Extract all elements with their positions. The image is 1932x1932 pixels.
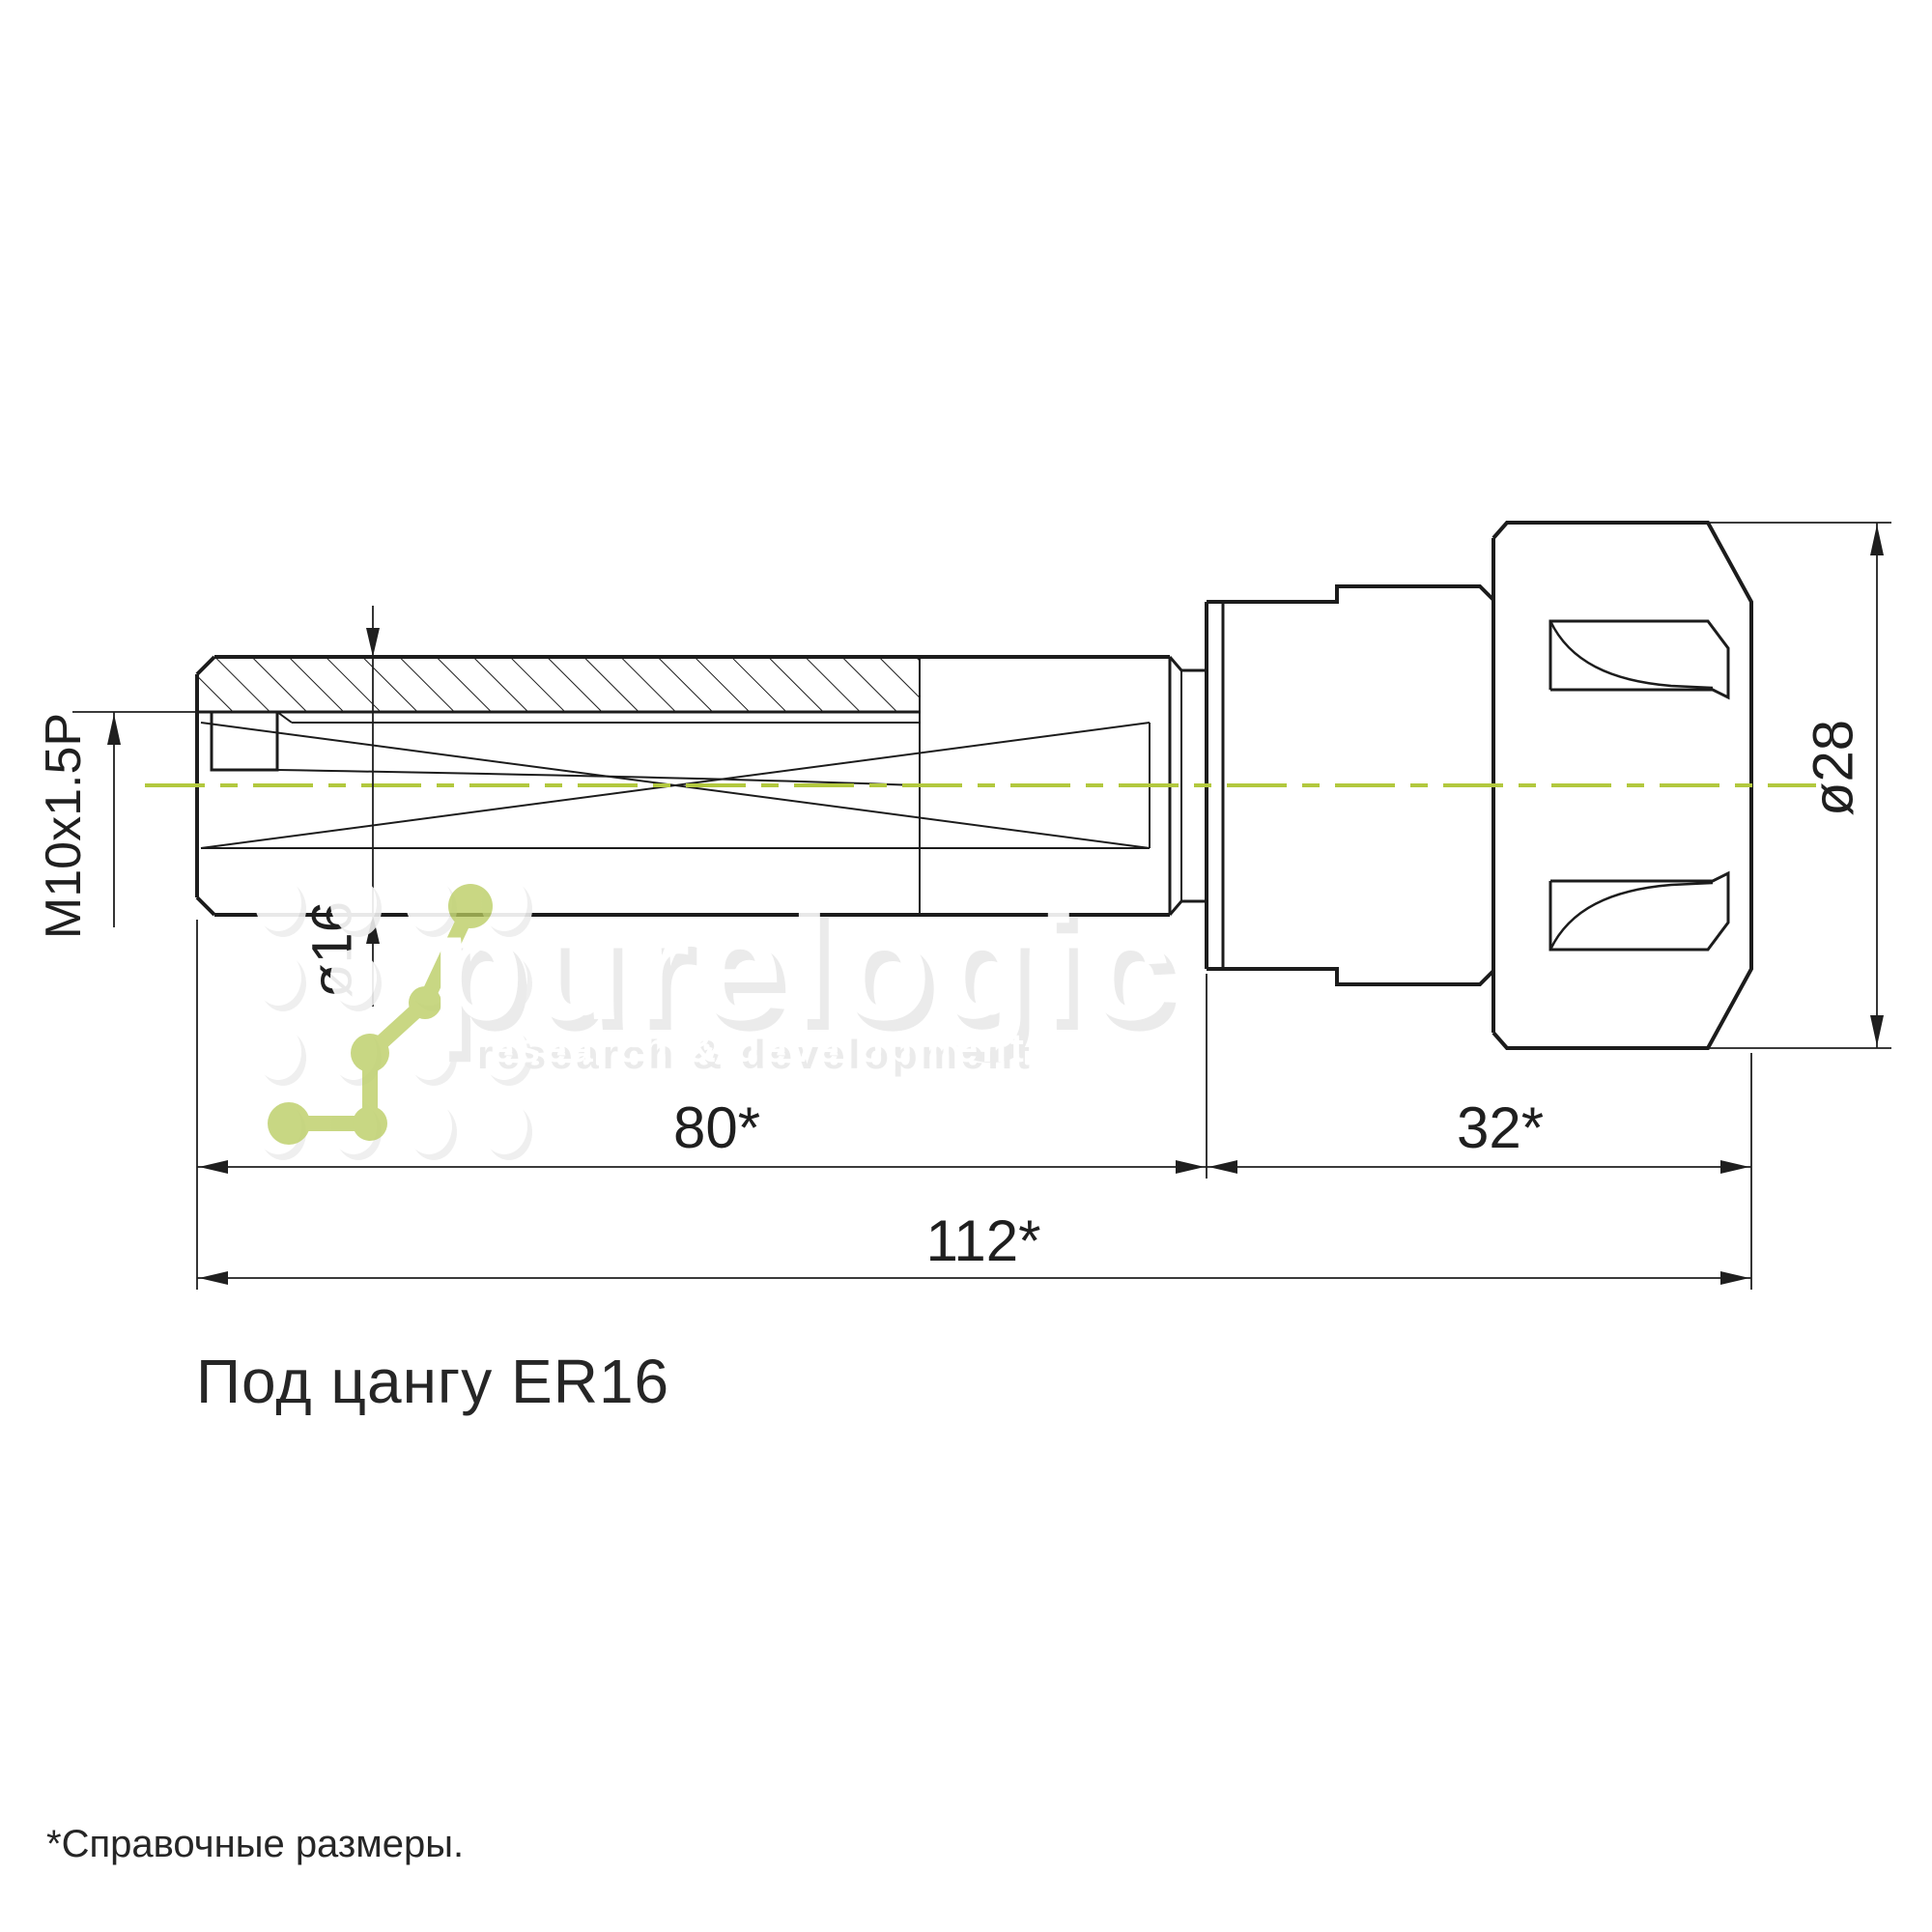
nut-length-label: 32* — [1457, 1095, 1544, 1160]
reference-dimensions-footnote: *Справочные размеры. — [46, 1823, 464, 1865]
shank-length-label: 80* — [673, 1095, 760, 1160]
watermark-tagline: research & development research & develo… — [471, 1025, 1034, 1077]
nut-slot-top — [1550, 621, 1728, 697]
technical-drawing-canvas: M10x1.5P ø16 ø28 80* 32* 112* Под цангу … — [0, 0, 1932, 1932]
nut-slot-bottom — [1550, 873, 1728, 950]
nut-diameter-label: ø28 — [1803, 720, 1865, 816]
total-length-label: 112* — [925, 1208, 1040, 1273]
drawing-page: M10x1.5P ø16 ø28 80* 32* 112* Под цангу … — [0, 0, 1932, 1932]
section-hatch — [197, 657, 920, 712]
drawing-title: Под цангу ER16 — [196, 1347, 669, 1416]
thread-dimension-label: M10x1.5P — [36, 713, 92, 939]
watermark-tagline-text: research & development — [471, 1025, 1028, 1070]
